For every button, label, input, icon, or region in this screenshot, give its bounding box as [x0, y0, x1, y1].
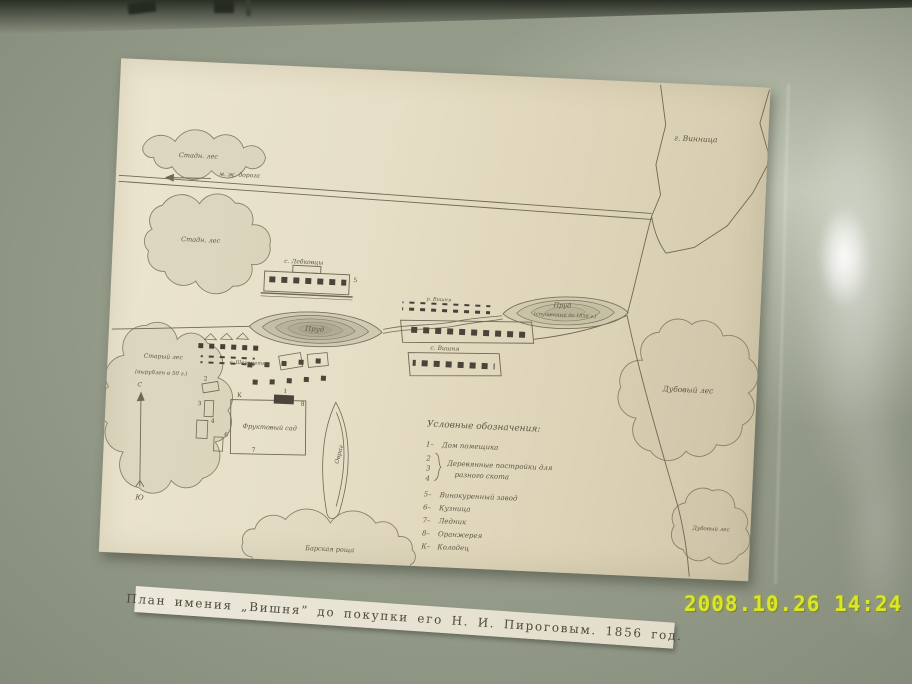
legend-num-6: 6– — [423, 503, 432, 511]
marker-2: 2 — [204, 375, 208, 382]
marker-6: 6 — [224, 431, 228, 438]
legend-label-group-2: разного скота — [454, 471, 509, 481]
vinnitsa-boundary-join — [650, 216, 668, 253]
legend-label-6: Кузница — [438, 504, 471, 513]
camera-timestamp: 2008.10.26 14:24 — [684, 592, 902, 616]
legend-num-k: К– — [420, 542, 431, 550]
legend-num-5: 5– — [424, 490, 433, 498]
marker-5: 5 — [353, 277, 357, 284]
legend-label-1: Дом помещика — [441, 441, 499, 452]
legend: Условные обозначения: 1– Дом помещика 2 … — [420, 418, 555, 556]
marker-7: 7 — [251, 447, 255, 454]
marker-8: 8 — [301, 401, 305, 408]
legend-title: Условные обозначения: — [427, 419, 541, 435]
legend-num-7: 7– — [422, 516, 431, 524]
legend-num-4: 4 — [424, 474, 430, 482]
village-label: с. Вишня — [430, 345, 459, 353]
marker-3: 3 — [197, 400, 201, 407]
flash-reflection — [818, 205, 870, 309]
frame-clip — [214, 0, 234, 13]
forest-top-left-label: Стадн. лес — [179, 151, 219, 161]
frame-clip — [246, 0, 251, 16]
legend-label-8: Оранжерея — [438, 530, 483, 540]
map-caption-text: План имения „Вишня” до покупки его Н. И.… — [126, 591, 683, 643]
road-direction-arrowhead — [165, 173, 174, 181]
legend-label-7: Ледник — [437, 517, 467, 526]
hamlet-label: с. Шереметка — [229, 359, 268, 367]
farm-building — [261, 264, 354, 300]
legend-brace — [434, 453, 441, 481]
farmstead-label: с. Лебковцы — [284, 258, 324, 267]
vinnitsa-boundary-right — [666, 85, 771, 257]
orchard-label: Фруктовый сад — [242, 422, 297, 432]
pond-right-label: Пруд — [552, 301, 571, 310]
legend-num-1: 1– — [426, 440, 435, 448]
legend-label-5: Винокуренный завод — [439, 491, 519, 503]
compass-south-label: Ю — [134, 493, 144, 501]
vinnitsa-boundary-left — [652, 85, 668, 217]
marker-1: 1 — [283, 388, 287, 395]
legend-label-k: Колодец — [436, 543, 469, 552]
river-label: р. Вишня — [426, 296, 451, 303]
map-sheet: Стадн. лес м. ж. дорога Стадн. лес Стары… — [99, 58, 771, 581]
estate-map: Стадн. лес м. ж. дорога Стадн. лес Стары… — [99, 58, 771, 581]
ravine-label: Овраг — [333, 445, 345, 465]
pond-left-label: Пруд — [304, 325, 325, 334]
city-label: г. Винница — [674, 133, 718, 144]
legend-num-8: 8– — [422, 529, 431, 537]
road-to-vinnitsa — [627, 216, 651, 316]
legend-num-2: 2 — [425, 454, 431, 462]
compass-north-label: С — [137, 381, 142, 388]
forest-outlines — [99, 126, 768, 581]
legend-num-3: 3 — [426, 465, 431, 473]
glass-edge-reflection — [774, 84, 789, 584]
marker-4: 4 — [211, 418, 215, 425]
marker-k: К — [237, 392, 242, 399]
map-caption-strip: План имения „Вишня” до покупки его Н. И.… — [134, 586, 675, 649]
